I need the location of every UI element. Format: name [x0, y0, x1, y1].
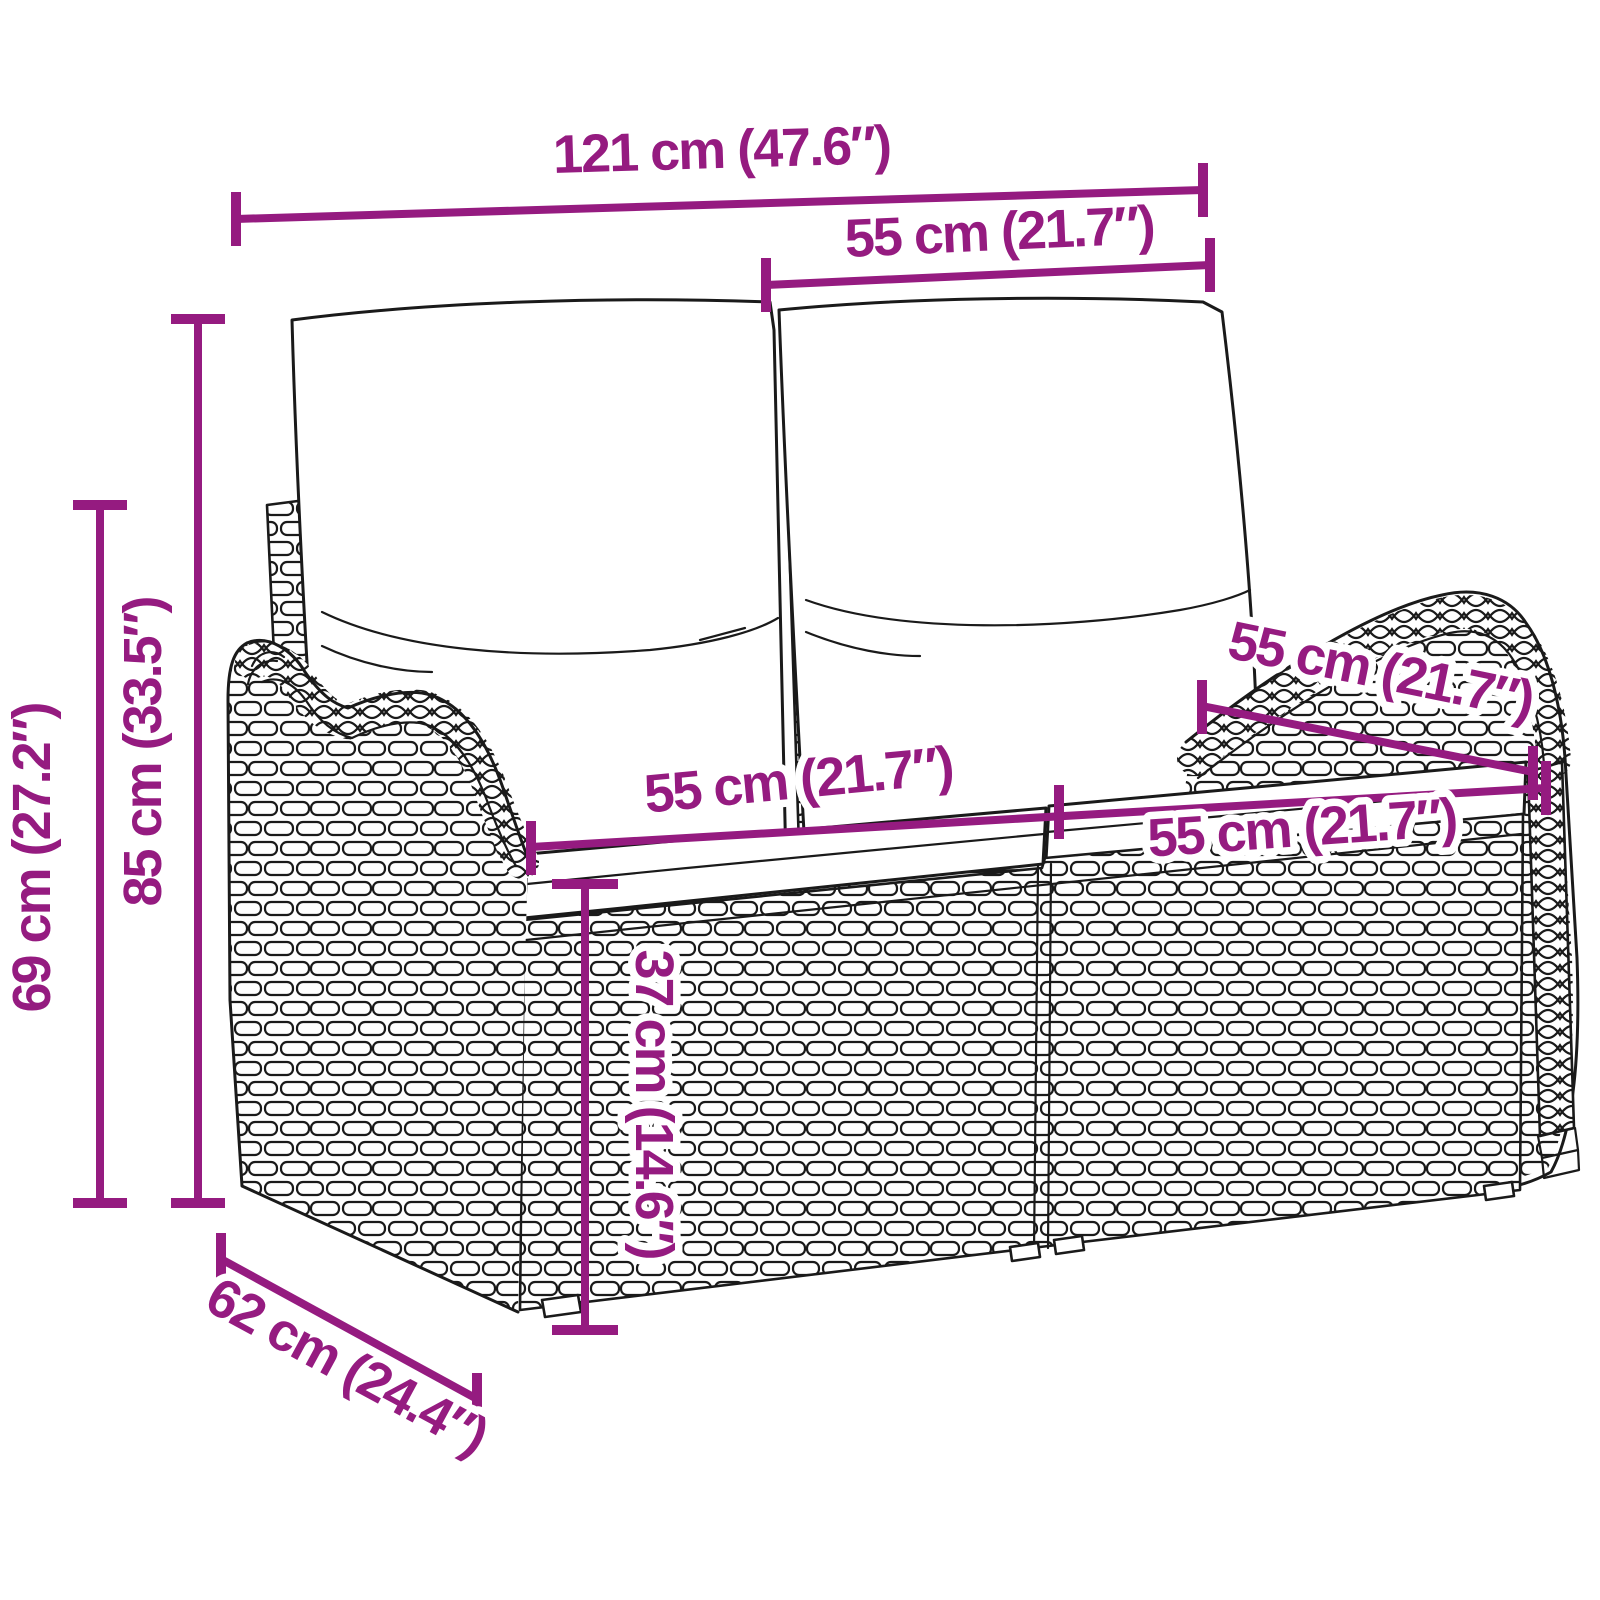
overall-height-label: 85 cm (33.5″): [113, 597, 173, 906]
seat-height-label: 37 cm (14.6″): [624, 949, 684, 1258]
overall-width-label: 121 cm (47.6″): [552, 115, 891, 185]
sofa-foot: [1054, 1236, 1084, 1254]
sofa-foot: [1484, 1182, 1514, 1200]
overall-depth-label: 62 cm (24.4″): [196, 1266, 496, 1466]
diagram-canvas: 121 cm (47.6″) 55 cm (21.7″) 69 cm (27.2…: [0, 0, 1600, 1600]
sofa-foot: [542, 1295, 581, 1317]
dimension-overall-height: 85 cm (33.5″): [113, 319, 225, 1203]
sofa-foot: [1010, 1243, 1040, 1261]
dimension-diagram-svg: 121 cm (47.6″) 55 cm (21.7″) 69 cm (27.2…: [0, 0, 1600, 1600]
dimension-backrest-width: 55 cm (21.7″): [766, 195, 1210, 312]
left-armrest: [228, 640, 528, 1312]
backrest-width-label: 55 cm (21.7″): [843, 195, 1154, 269]
armrest-height-label: 69 cm (27.2″): [2, 703, 62, 1012]
dimension-armrest-height: 69 cm (27.2″): [2, 505, 127, 1203]
